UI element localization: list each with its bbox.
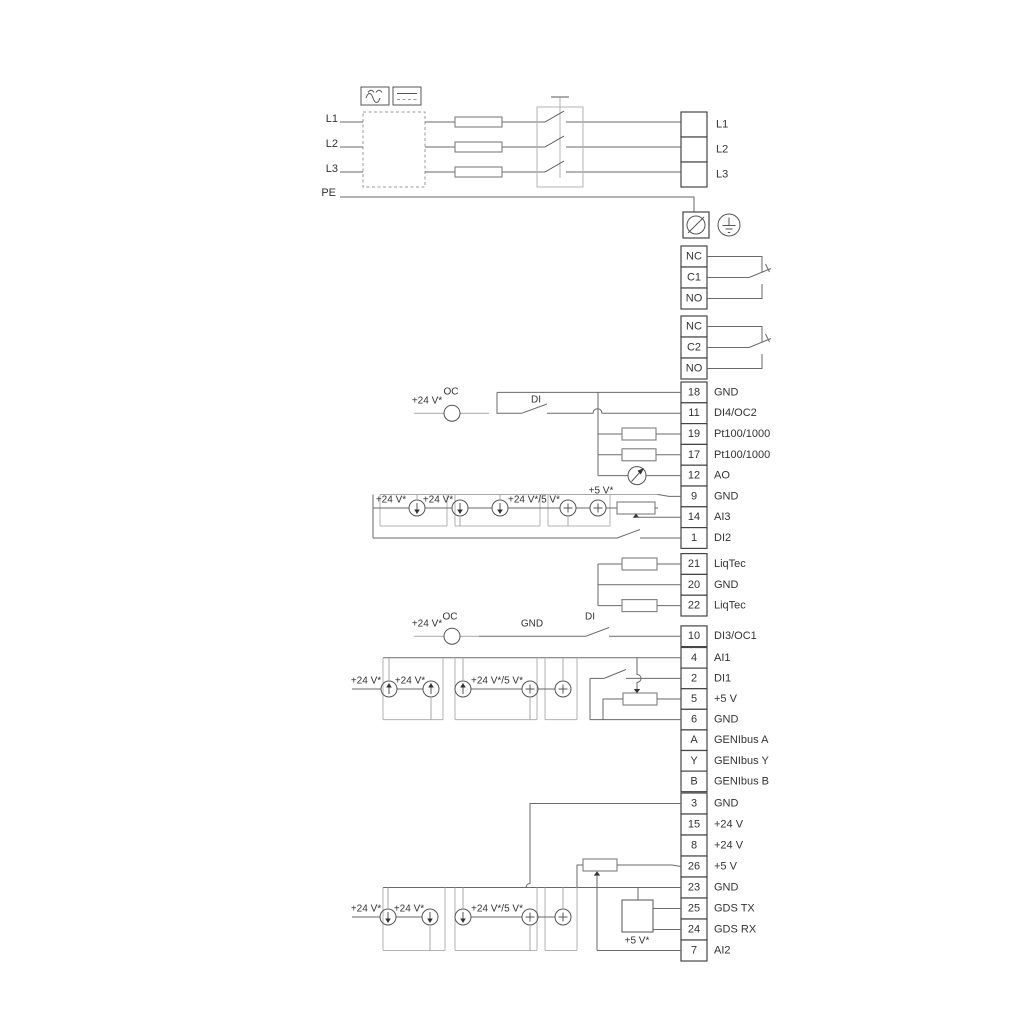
terminal-label: GENIbus B <box>714 775 769 787</box>
open-collector-icon <box>444 405 460 421</box>
wire-5v-26 <box>617 865 681 867</box>
source-row-ai3: +24 V* +24 V* +24 V*/5 V* +5 V* <box>373 486 681 539</box>
terminal-label: DI1 <box>714 672 731 684</box>
main-switch-icon <box>537 97 583 187</box>
terminal-label: GND <box>714 490 739 502</box>
dc-symbol-box <box>393 87 421 105</box>
wire-wiper-drop <box>637 658 641 689</box>
io-block-4: 3 GND 15 +24 V 8 +24 V 26 +5 V 23 GND 25… <box>681 793 757 961</box>
filter-box <box>363 112 425 187</box>
pt100-resistor-icon <box>622 449 656 461</box>
terminal-number: 19 <box>688 428 700 440</box>
terminal-label: GND <box>714 714 739 726</box>
fuse-l3-icon <box>455 167 502 177</box>
pe-terminal-icon <box>683 212 709 238</box>
v24-label: +24 V* <box>394 904 424 915</box>
relay1-changeover-contact-icon <box>707 257 771 299</box>
current-source-down-icon <box>452 500 468 516</box>
voltage-source-plus-icon <box>555 909 571 925</box>
relay1-c: C1 <box>687 272 701 284</box>
voltage-source-plus-icon <box>590 500 606 516</box>
mains-label-l1: L1 <box>326 113 338 125</box>
terminal-number: 20 <box>688 579 700 591</box>
relay2-changeover-contact-icon <box>707 327 771 369</box>
di2-switch-icon <box>617 530 640 539</box>
ac-wave2-icon <box>368 90 382 92</box>
terminal-label: GND <box>714 386 739 398</box>
terminal-number: 11 <box>688 407 699 419</box>
mains-label-l3: L3 <box>326 163 338 175</box>
terminal-label: AI3 <box>714 511 731 523</box>
v5-label: +5 V* <box>625 936 650 947</box>
fuse-l1-icon <box>455 117 502 127</box>
liqtec-resistor-icon <box>622 558 657 570</box>
oc-label: OC <box>444 387 459 398</box>
terminal-label: AO <box>714 470 730 482</box>
analog-output-meter-icon <box>628 467 646 485</box>
wire-pot-gnd <box>603 699 623 720</box>
terminal-label: GDS TX <box>714 903 755 915</box>
terminal-number: 26 <box>688 861 700 873</box>
relay1-block: NC C1 NO <box>681 246 771 309</box>
open-collector-icon <box>444 628 460 644</box>
terminal-label: AI2 <box>714 945 731 957</box>
terminal-cell <box>681 112 707 137</box>
v24-label: +24 V* <box>395 676 425 687</box>
terminal-number: 14 <box>688 511 700 523</box>
terminal-number: 15 <box>688 819 700 831</box>
motor-terminal-block: L1 L2 L3 <box>681 112 728 187</box>
terminal-number: 25 <box>688 903 700 915</box>
oc-label: OC <box>443 612 458 623</box>
terminal-number: 8 <box>691 840 697 852</box>
gds-sensor-box: +5 V* <box>622 888 681 947</box>
motor-label-l1: L1 <box>716 119 728 131</box>
relay1-no: NO <box>686 293 703 305</box>
terminal-number: 22 <box>688 600 700 612</box>
terminal-cell <box>681 162 707 187</box>
di3-oc1-row: 10 DI3/OC1 +24 V* OC GND DI <box>412 612 757 647</box>
terminal-number: 5 <box>691 693 697 705</box>
potentiometer-icon <box>623 693 657 705</box>
mains-label-pe: PE <box>321 187 336 199</box>
v24-5v-label: +24 V*/5 V* <box>508 495 560 506</box>
terminal-label: LiqTec <box>714 600 746 612</box>
terminal-number: 12 <box>688 470 700 482</box>
terminal-label: +5 V <box>714 693 738 705</box>
ac-wave-icon <box>366 94 380 103</box>
v24-label: +24 V* <box>376 495 406 506</box>
terminal-label: GND <box>714 882 739 894</box>
terminal-label: GND <box>714 798 739 810</box>
terminal-label: DI3/OC1 <box>714 630 757 642</box>
option-frame <box>383 888 445 951</box>
fuse-l2-icon <box>455 142 502 152</box>
voltage-source-plus-icon <box>555 681 571 697</box>
source-row-ai1: +24 V* +24 V* +24 V*/5 V* <box>351 658 681 720</box>
terminal-label: GENIbus A <box>714 734 769 746</box>
terminal-label: Pt100/1000 <box>714 449 770 461</box>
gnd-label: GND <box>521 619 543 630</box>
terminal-number: 3 <box>691 798 697 810</box>
wire-pot-gnd <box>577 865 583 888</box>
terminal-number: A <box>690 734 698 746</box>
terminal-number: 21 <box>688 558 700 570</box>
current-source-down-icon <box>422 909 438 925</box>
io-block-3: 4 AI1 2 DI1 5 +5 V 6 GND A GENIbus A Y G… <box>681 648 769 792</box>
potentiometer-icon <box>583 859 617 871</box>
current-source-up-icon <box>423 681 439 697</box>
v24-label: +24 V* <box>423 495 453 506</box>
wire-di4 <box>497 392 522 413</box>
wire-pe <box>340 197 694 212</box>
earth-ground-icon <box>718 214 740 236</box>
relay2-no: NO <box>686 363 703 375</box>
terminal-label: DI2 <box>714 532 731 544</box>
terminal-number: 23 <box>688 882 700 894</box>
relay1-nc: NC <box>686 251 702 263</box>
terminal-number: 24 <box>688 924 700 936</box>
option-frame <box>455 888 537 951</box>
relay2-nc: NC <box>686 321 702 333</box>
terminal-number: 6 <box>691 714 697 726</box>
v24-label: +24 V* <box>351 904 381 915</box>
wire-di4-b <box>547 409 681 414</box>
option-frame <box>545 888 577 951</box>
v24-label: +24 V* <box>412 396 442 407</box>
terminal-number: B <box>690 775 697 787</box>
relay2-block: NC C2 NO <box>681 316 771 379</box>
wire-gnd-9 <box>655 495 681 509</box>
v24-5v-label: +24 V*/5 V* <box>471 904 523 915</box>
terminal-number: 2 <box>691 672 697 684</box>
wiring-diagram: L1 L2 L3 PE <box>0 0 1024 1024</box>
terminal-label: Pt100/1000 <box>714 428 770 440</box>
terminal-label: GND <box>714 579 739 591</box>
io-block-1: 18 GND 11 DI4/OC2 19 Pt100/1000 17 Pt100… <box>681 382 770 548</box>
wire-gnd-3 <box>526 804 681 888</box>
mains-input-section: L1 L2 L3 PE <box>321 87 740 238</box>
terminal-label: +24 V <box>714 819 744 831</box>
di3-switch-icon <box>586 628 609 637</box>
potentiometer-icon <box>617 502 655 514</box>
terminal-cell <box>681 137 707 162</box>
liqtec-block: 21 LiqTec 20 GND 22 LiqTec <box>598 554 746 616</box>
v5-label: +5 V* <box>589 486 614 497</box>
terminal-number: 17 <box>688 449 700 461</box>
voltage-source-plus-icon <box>560 500 576 516</box>
pot-wiper-arrow-icon <box>594 871 600 875</box>
voltage-source-plus-icon <box>522 681 538 697</box>
terminal-number: Y <box>690 755 698 767</box>
pt100-resistor-icon <box>622 428 656 440</box>
motor-label-l2: L2 <box>716 144 728 156</box>
motor-label-l3: L3 <box>716 169 728 181</box>
terminal-number: 4 <box>691 652 697 664</box>
v24-label: +24 V* <box>412 619 442 630</box>
terminal-number: 18 <box>688 386 700 398</box>
voltage-source-plus-icon <box>522 909 538 925</box>
v24-label: +24 V* <box>351 676 381 687</box>
di1-switch-icon <box>604 670 626 679</box>
wiring-diagram-page: L1 L2 L3 PE <box>0 0 1024 1024</box>
current-source-up-icon <box>455 681 471 697</box>
terminal-label: DI4/OC2 <box>714 407 757 419</box>
terminal-label: +24 V <box>714 840 744 852</box>
terminal-label: LiqTec <box>714 558 746 570</box>
terminal-label: +5 V <box>714 861 738 873</box>
terminal-label: AI1 <box>714 652 731 664</box>
terminal-number: 7 <box>691 945 697 957</box>
io1-wiring: +24 V* OC DI <box>412 387 681 485</box>
current-source-down-icon <box>492 500 508 516</box>
di-label: DI <box>531 395 541 406</box>
terminal-number: 9 <box>691 490 697 502</box>
liqtec-resistor-icon <box>622 600 657 612</box>
source-row-ai2: +24 V* +24 V* +24 V*/5 V* +5 V* <box>351 804 681 951</box>
terminal-label: GDS RX <box>714 924 757 936</box>
relay2-c: C2 <box>687 342 701 354</box>
v24-5v-label: +24 V*/5 V* <box>471 676 523 687</box>
terminal-number: 10 <box>688 630 700 642</box>
current-source-down-icon <box>455 909 471 925</box>
di-label: DI <box>585 612 595 623</box>
mains-label-l2: L2 <box>326 138 338 150</box>
terminal-label: GENIbus Y <box>714 755 769 767</box>
terminal-number: 1 <box>691 532 697 544</box>
